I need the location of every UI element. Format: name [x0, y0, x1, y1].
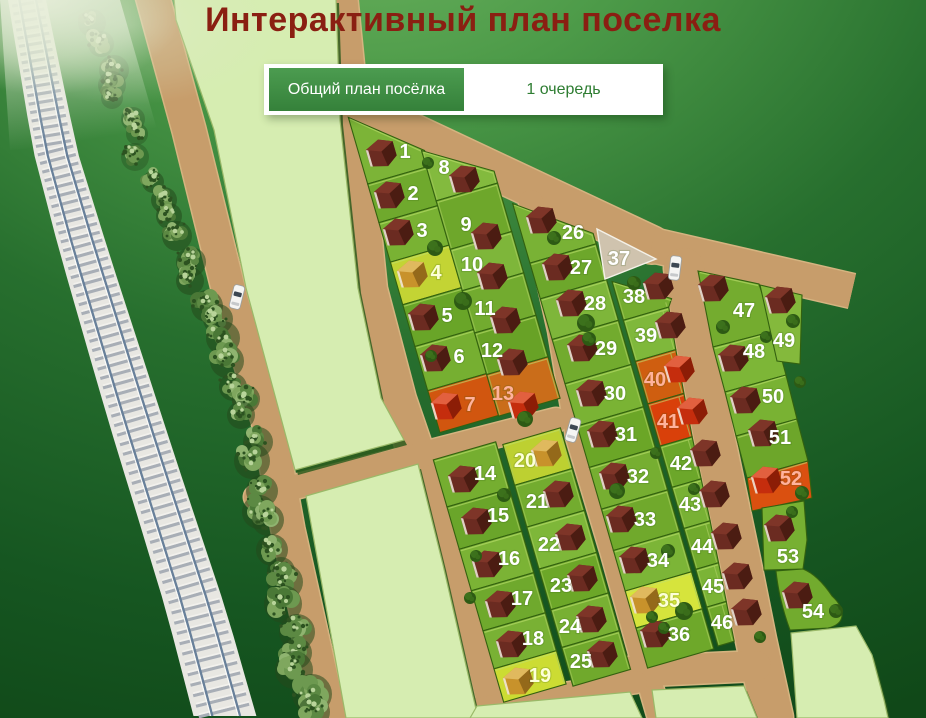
svg-text:38: 38: [623, 286, 645, 308]
svg-text:36: 36: [668, 624, 690, 646]
svg-text:25: 25: [570, 651, 592, 673]
svg-text:18: 18: [522, 628, 544, 650]
svg-text:12: 12: [481, 340, 503, 362]
svg-text:54: 54: [802, 601, 825, 623]
svg-text:10: 10: [461, 254, 483, 276]
svg-text:51: 51: [769, 427, 791, 449]
svg-text:24: 24: [559, 616, 582, 638]
svg-text:32: 32: [627, 466, 649, 488]
svg-text:47: 47: [733, 300, 755, 322]
svg-text:2: 2: [407, 183, 418, 205]
svg-text:45: 45: [702, 576, 724, 598]
svg-text:43: 43: [679, 494, 701, 516]
svg-text:52: 52: [780, 468, 802, 490]
svg-text:7: 7: [464, 394, 475, 416]
svg-text:15: 15: [487, 505, 509, 527]
svg-text:40: 40: [644, 369, 666, 391]
svg-text:48: 48: [743, 341, 765, 363]
svg-text:27: 27: [570, 257, 592, 279]
svg-text:35: 35: [658, 590, 680, 612]
svg-text:19: 19: [529, 665, 551, 687]
svg-text:13: 13: [492, 383, 514, 405]
svg-text:20: 20: [514, 450, 536, 472]
svg-text:42: 42: [670, 453, 692, 475]
svg-text:11: 11: [474, 298, 495, 320]
svg-text:33: 33: [634, 509, 656, 531]
svg-text:9: 9: [460, 214, 471, 236]
svg-text:30: 30: [604, 383, 626, 405]
svg-text:8: 8: [438, 157, 449, 179]
svg-text:29: 29: [595, 338, 617, 360]
svg-text:53: 53: [777, 546, 799, 568]
svg-text:14: 14: [474, 463, 497, 485]
svg-text:37: 37: [608, 248, 630, 270]
svg-text:22: 22: [538, 534, 560, 556]
svg-text:41: 41: [657, 411, 679, 433]
svg-text:49: 49: [773, 330, 795, 352]
svg-text:21: 21: [526, 491, 548, 513]
svg-text:3: 3: [416, 220, 427, 242]
svg-text:31: 31: [615, 424, 637, 446]
svg-text:16: 16: [498, 548, 520, 570]
svg-text:44: 44: [691, 536, 714, 558]
svg-text:26: 26: [562, 222, 584, 244]
svg-text:1: 1: [399, 141, 410, 163]
svg-text:4: 4: [430, 262, 442, 284]
svg-text:46: 46: [711, 612, 733, 634]
svg-text:23: 23: [550, 575, 572, 597]
svg-text:50: 50: [762, 386, 784, 408]
svg-text:34: 34: [647, 550, 670, 572]
svg-text:39: 39: [635, 325, 657, 347]
svg-text:6: 6: [453, 346, 464, 368]
svg-text:17: 17: [511, 588, 533, 610]
svg-text:5: 5: [441, 305, 452, 327]
svg-text:28: 28: [584, 293, 606, 315]
